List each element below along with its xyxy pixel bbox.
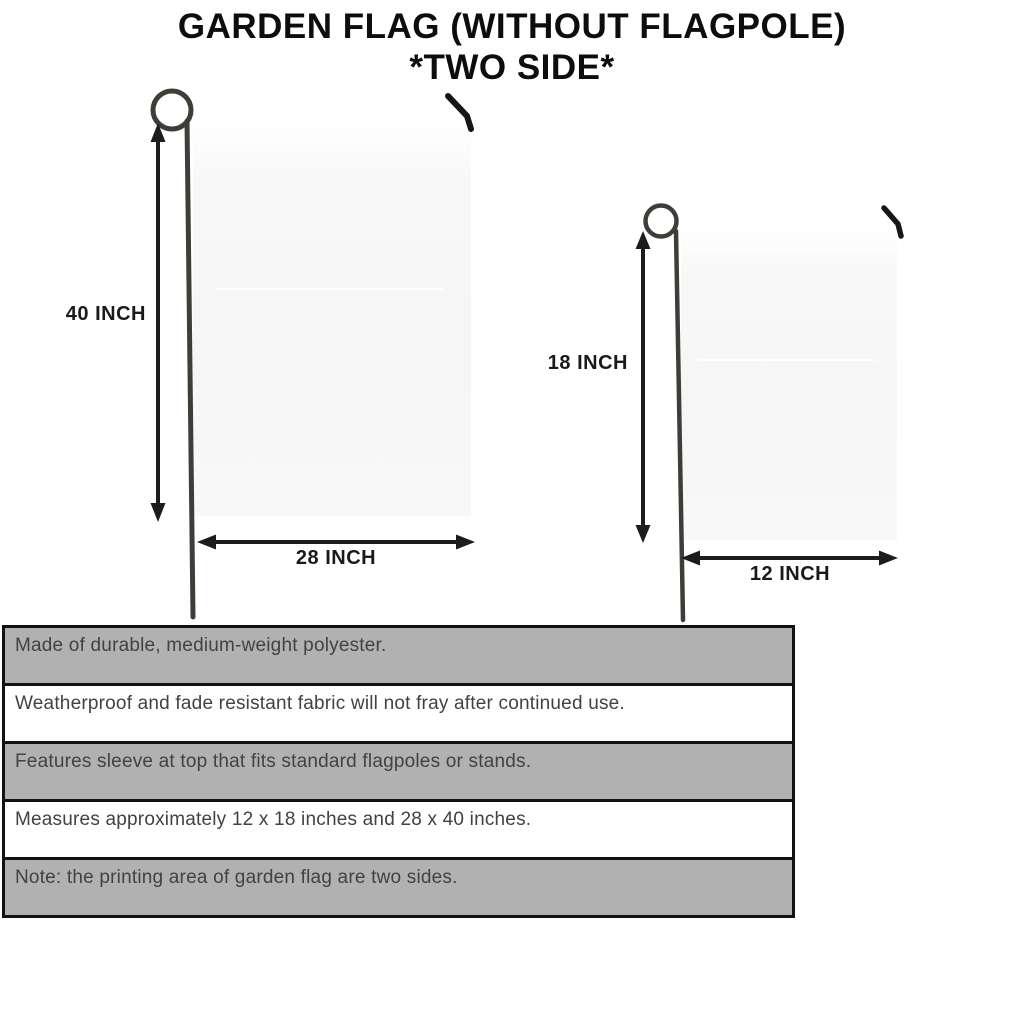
feature-row: Weatherproof and fade resistant fabric w… bbox=[5, 683, 792, 741]
large-pole-loop-icon bbox=[153, 91, 191, 129]
page-title: GARDEN FLAG (WITHOUT FLAGPOLE) *TWO SIDE… bbox=[0, 6, 1024, 88]
arrow-down-icon bbox=[151, 503, 166, 522]
arrow-right-icon bbox=[456, 535, 475, 550]
width-label-small: 12 INCH bbox=[690, 563, 890, 586]
garden-flag-infographic: GARDEN FLAG (WITHOUT FLAGPOLE) *TWO SIDE… bbox=[0, 0, 1024, 1024]
flag-small-12x18 bbox=[681, 228, 897, 540]
arrow-up-icon bbox=[636, 231, 651, 249]
arrow-up-icon bbox=[151, 123, 166, 142]
feature-table: Made of durable, medium-weight polyester… bbox=[2, 625, 795, 918]
feature-row: Features sleeve at top that fits standar… bbox=[5, 741, 792, 799]
width-label-large: 28 INCH bbox=[236, 547, 436, 570]
feature-text: Weatherproof and fade resistant fabric w… bbox=[15, 693, 625, 714]
feature-text: Features sleeve at top that fits standar… bbox=[15, 751, 531, 772]
feature-row: Measures approximately 12 x 18 inches an… bbox=[5, 799, 792, 857]
feature-row: Note: the printing area of garden flag a… bbox=[5, 857, 792, 915]
arrow-down-icon bbox=[636, 525, 651, 543]
flag-large-28x40 bbox=[193, 123, 471, 516]
feature-text: Measures approximately 12 x 18 inches an… bbox=[15, 809, 531, 830]
feature-row: Made of durable, medium-weight polyester… bbox=[5, 628, 792, 683]
small-pole-loop-icon bbox=[646, 206, 677, 237]
height-label-large: 40 INCH bbox=[40, 303, 146, 326]
title-line-2: *TWO SIDE* bbox=[0, 47, 1024, 88]
arrow-left-icon bbox=[197, 535, 216, 550]
title-line-1: GARDEN FLAG (WITHOUT FLAGPOLE) bbox=[0, 6, 1024, 47]
feature-text: Note: the printing area of garden flag a… bbox=[15, 867, 458, 888]
height-label-small: 18 INCH bbox=[520, 352, 628, 375]
feature-text: Made of durable, medium-weight polyester… bbox=[15, 635, 387, 656]
